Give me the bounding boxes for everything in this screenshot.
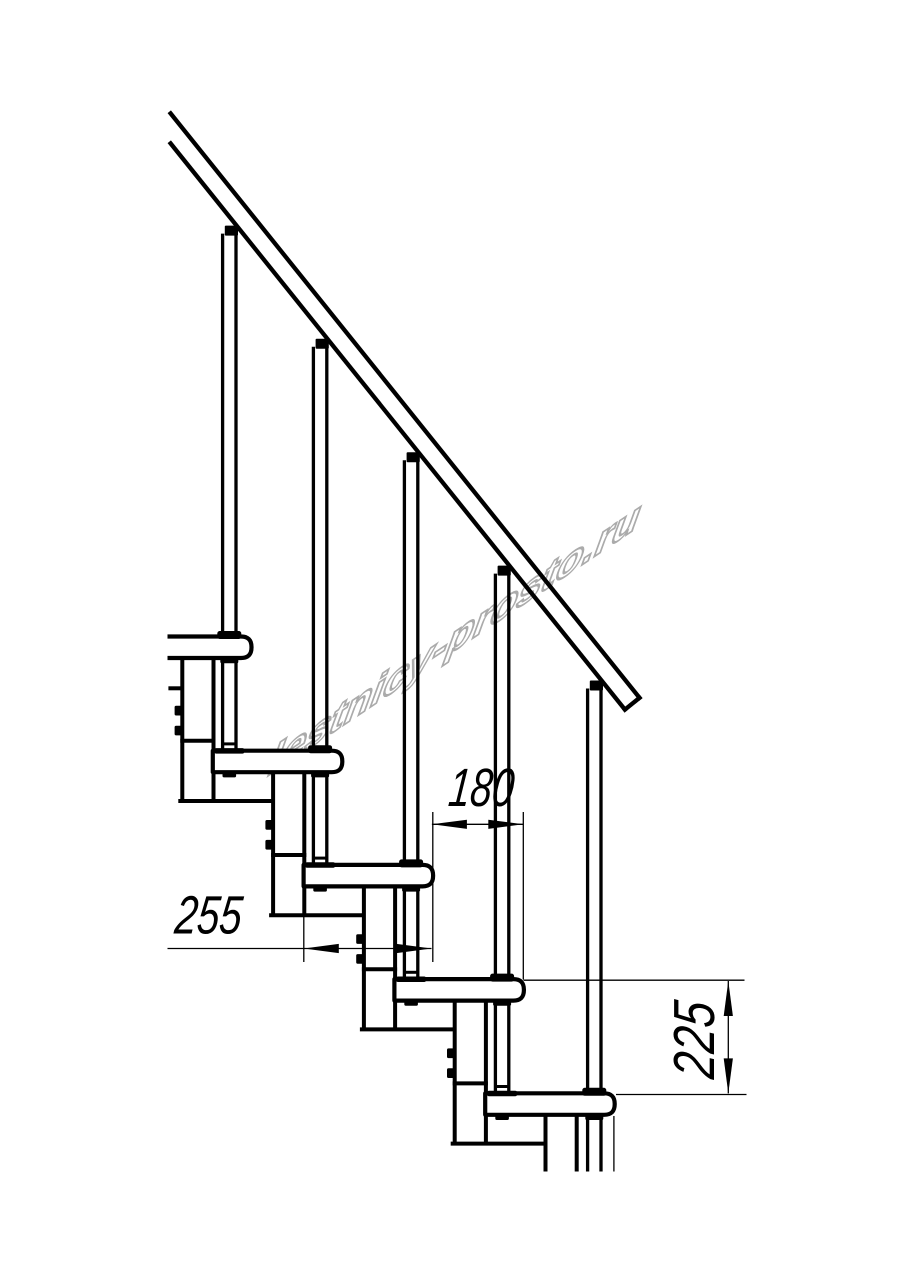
svg-text:225: 225 — [662, 997, 727, 1082]
svg-text:255: 255 — [172, 886, 246, 946]
svg-text:180: 180 — [446, 758, 517, 818]
